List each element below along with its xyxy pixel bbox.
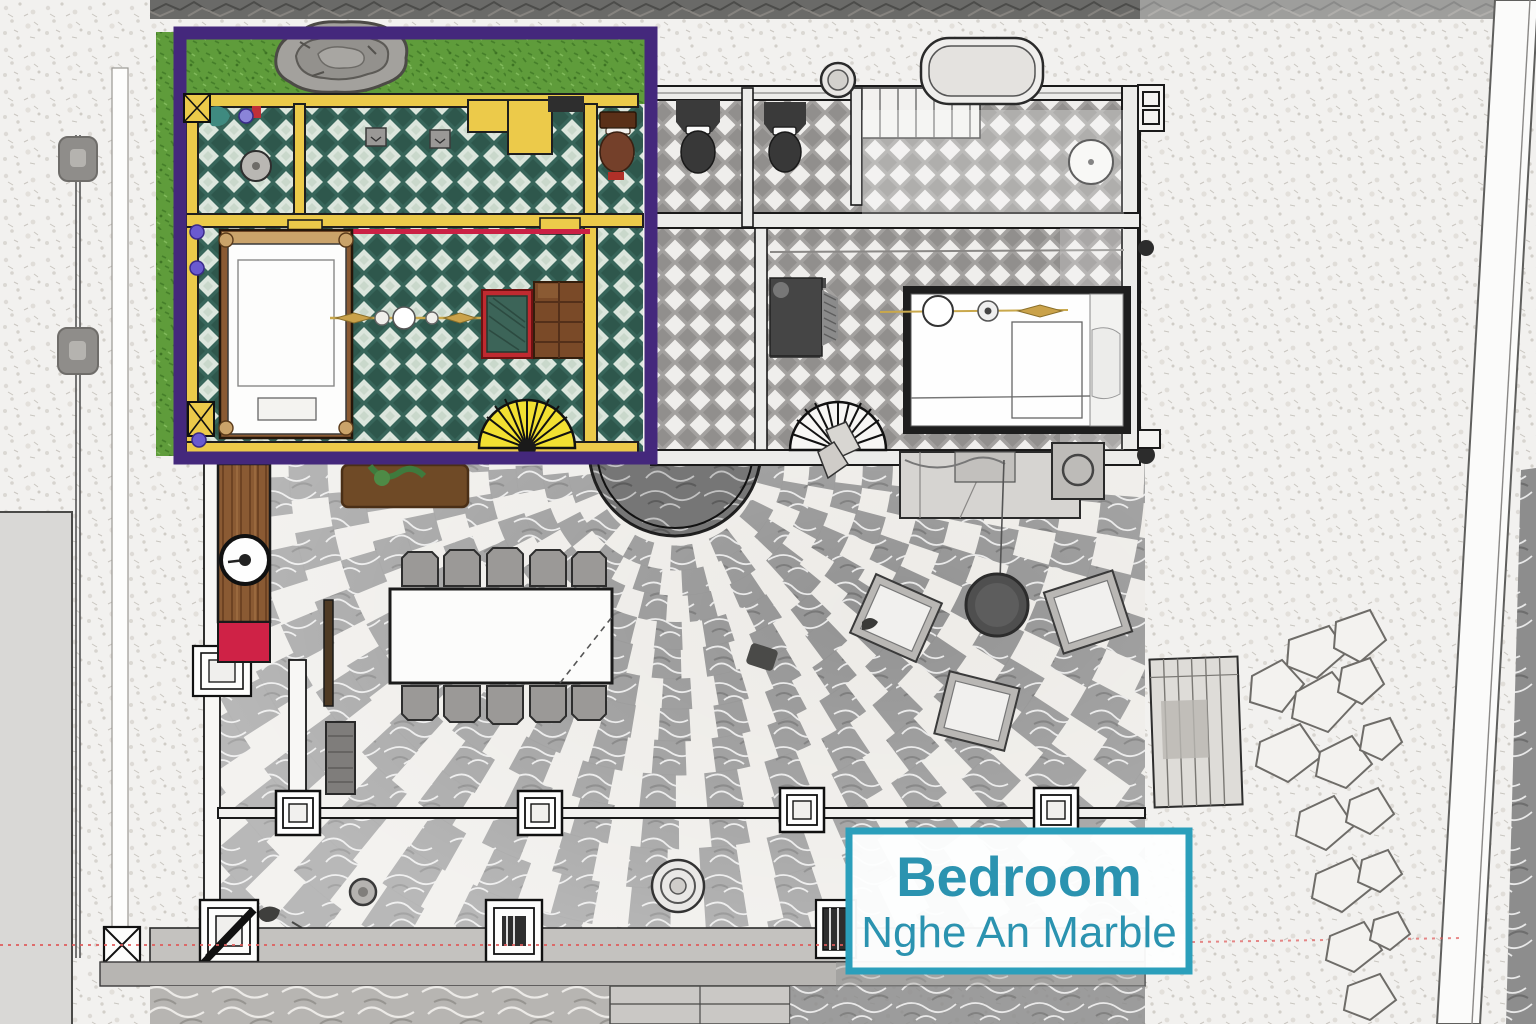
svg-text:Nghe An Marble: Nghe An Marble	[861, 908, 1177, 957]
svg-text:Bedroom: Bedroom	[896, 845, 1142, 908]
